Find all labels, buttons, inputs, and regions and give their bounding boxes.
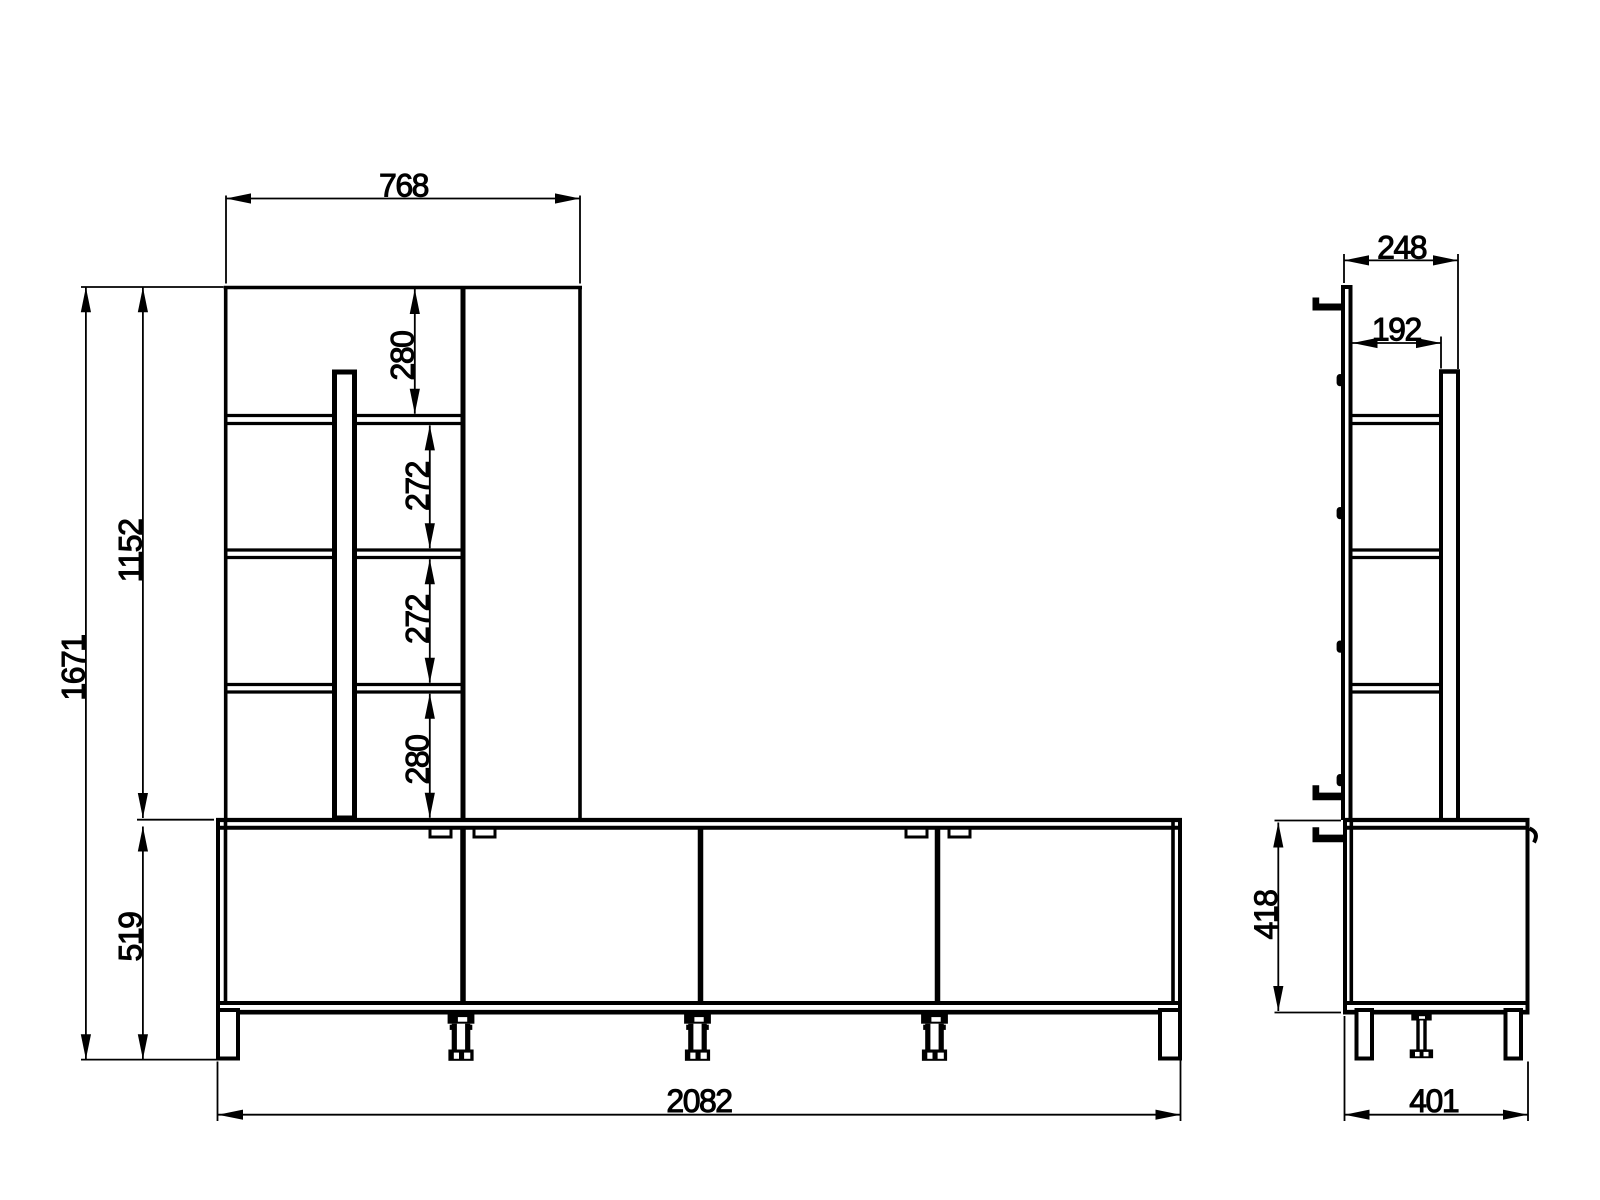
svg-text:280: 280 xyxy=(399,735,435,785)
svg-text:1152: 1152 xyxy=(112,519,148,583)
svg-text:248: 248 xyxy=(1377,230,1427,266)
svg-text:272: 272 xyxy=(399,594,435,644)
svg-text:280: 280 xyxy=(384,331,420,381)
svg-text:2082: 2082 xyxy=(666,1083,732,1119)
svg-text:272: 272 xyxy=(399,461,435,511)
svg-text:418: 418 xyxy=(1248,890,1284,940)
svg-text:519: 519 xyxy=(112,912,148,962)
svg-text:401: 401 xyxy=(1409,1083,1459,1119)
svg-text:1671: 1671 xyxy=(55,635,91,701)
svg-text:192: 192 xyxy=(1372,312,1422,348)
svg-text:768: 768 xyxy=(379,168,429,204)
